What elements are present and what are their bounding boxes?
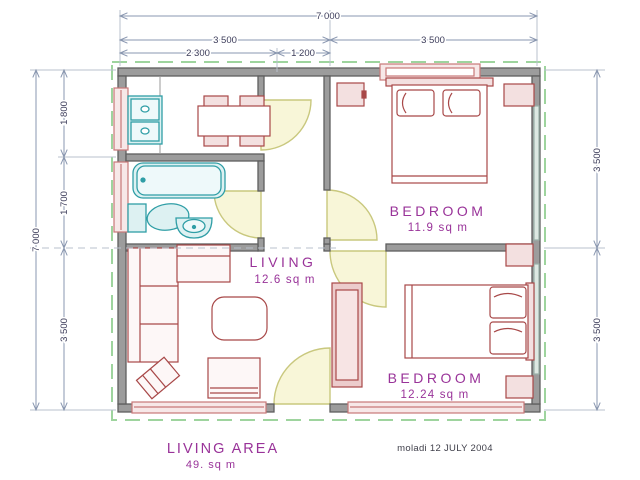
bathroom — [128, 163, 225, 238]
dim-label-right-3500-bottom: 3 500 — [592, 318, 603, 342]
tv-unit — [208, 358, 260, 398]
dining-chair-1 — [204, 96, 228, 107]
dim-label-left-3500: 3 500 — [59, 318, 70, 342]
kitchen-dining — [128, 76, 270, 154]
bedroom2-area: 12.24 sq m — [401, 389, 470, 401]
sink-drain-bottom — [141, 128, 149, 134]
bathtub-inner — [137, 166, 221, 195]
dining-chair-3 — [204, 135, 228, 146]
dim-label-top-1200: 1 200 — [291, 48, 315, 59]
dim-label-left-1800: 1 800 — [59, 101, 70, 125]
sofa-top — [177, 245, 230, 282]
wall-kitchen-bath-divider — [126, 154, 264, 161]
bedroom1-name: BEDROOM — [390, 203, 487, 219]
bed2-nightstand-top — [506, 244, 533, 266]
bedroom2-name: BEDROOM — [388, 370, 485, 386]
wall-bedroom1-left — [324, 76, 330, 190]
floor-plan-drawing: 7 000 3 500 3 500 2 300 1 200 7 000 1 80… — [0, 0, 640, 480]
dining-table — [198, 106, 270, 136]
sofa-vertical — [128, 248, 178, 362]
bedroom1-door-swing — [327, 190, 377, 240]
window-right-bedroom1 — [534, 106, 539, 240]
bathtub-drain — [141, 178, 145, 182]
corner-rack — [136, 357, 179, 399]
bathroom-door-swing — [214, 191, 261, 238]
bed2-pillow-bottom — [490, 322, 526, 354]
bed1-nightstand-left-knob — [362, 91, 366, 98]
toilet-tank — [128, 204, 146, 232]
bedroom1-area: 11.9 sq m — [408, 222, 468, 234]
footer: LIVING AREA 49. sq m moladi 12 JULY 2004 — [167, 441, 493, 471]
entrance-door-swing — [274, 348, 330, 404]
footer-living-area-label: LIVING AREA — [167, 441, 279, 457]
dining-chair-4 — [240, 135, 264, 146]
dim-label-left-7000: 7 000 — [31, 228, 42, 252]
dim-label-right-3500-top: 3 500 — [592, 148, 603, 172]
wall-bath-right-upper — [258, 161, 264, 191]
dim-label-top-7000: 7 000 — [316, 11, 340, 22]
window-right-bedroom2 — [534, 264, 539, 374]
bed2-nightstand-bottom — [506, 376, 533, 398]
bed1-nightstand-right — [504, 84, 534, 106]
floor-plan-page: 7 000 3 500 3 500 2 300 1 200 7 000 1 80… — [0, 0, 640, 480]
window-top-bedroom1-inner — [386, 68, 474, 76]
footer-living-area-value: 49. sq m — [186, 459, 236, 471]
sink-drain-top — [141, 106, 149, 112]
living-room — [128, 245, 267, 399]
washbasin-drain — [193, 226, 196, 229]
living-area-label: 12.6 sq m — [254, 274, 315, 286]
wardrobe-inner — [336, 290, 358, 380]
kitchen-sink — [128, 96, 162, 144]
dining-chair-2 — [240, 96, 264, 107]
footer-credit: moladi 12 JULY 2004 — [397, 443, 493, 454]
coffee-table — [212, 297, 267, 340]
dim-label-top-3500-right: 3 500 — [421, 35, 445, 46]
bed1-nightstand-left — [337, 83, 364, 106]
dining-set — [198, 96, 270, 146]
wall-bedroom1-left-stub — [324, 238, 330, 244]
bedroom1 — [337, 78, 534, 183]
dim-label-top-2300: 2 300 — [186, 48, 210, 59]
wall-bath-right-lower — [258, 238, 264, 251]
dim-label-left-1700: 1 700 — [59, 191, 70, 215]
living-name: LIVING — [250, 254, 317, 270]
dim-label-top-3500-left: 3 500 — [213, 35, 237, 46]
bed2-pillow-top — [490, 287, 526, 318]
